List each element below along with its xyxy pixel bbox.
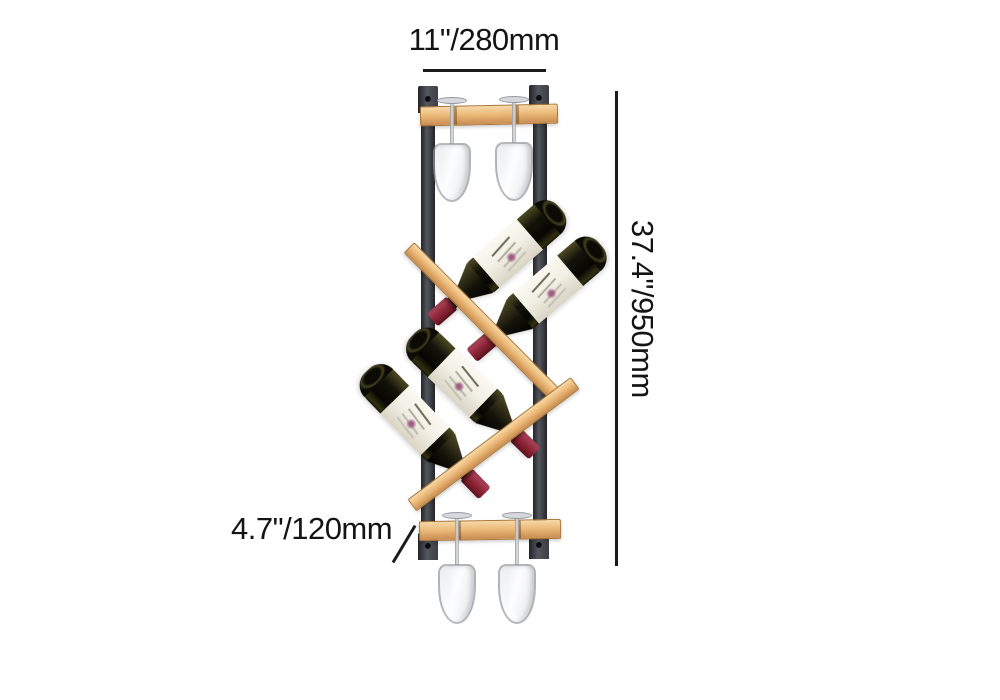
wine-glass — [433, 97, 471, 202]
depth-dimension-label: 4.7"/120mm — [231, 511, 392, 547]
glass-bowl — [438, 564, 476, 624]
glass-base — [499, 96, 529, 103]
glass-base — [437, 97, 467, 104]
glass-stem — [450, 104, 454, 144]
wine-glass — [438, 512, 476, 624]
bottle-label — [380, 386, 449, 456]
glass-bowl — [433, 143, 471, 202]
width-dimension-label: 11"/280mm — [384, 22, 584, 58]
screw-hole — [425, 96, 431, 102]
screw-hole — [536, 542, 542, 548]
product-dimension-image: 11"/280mm 37.4"/950mm 4.7"/120mm — [0, 0, 1000, 700]
height-dimension-label: 37.4"/950mm — [624, 220, 660, 398]
glass-stem — [455, 519, 459, 565]
glass-base — [502, 512, 532, 519]
screw-hole — [425, 543, 431, 549]
wine-glass — [498, 512, 536, 624]
depth-leader-line — [392, 525, 417, 563]
height-dimension-line — [615, 91, 618, 566]
glass-bowl — [495, 142, 533, 201]
glass-bowl — [498, 564, 536, 624]
screw-hole — [536, 95, 542, 101]
glass-stem — [512, 103, 516, 143]
wine-glass — [495, 96, 533, 201]
glass-stem — [515, 519, 519, 565]
glass-base — [442, 512, 472, 519]
width-dimension-line — [423, 69, 546, 72]
